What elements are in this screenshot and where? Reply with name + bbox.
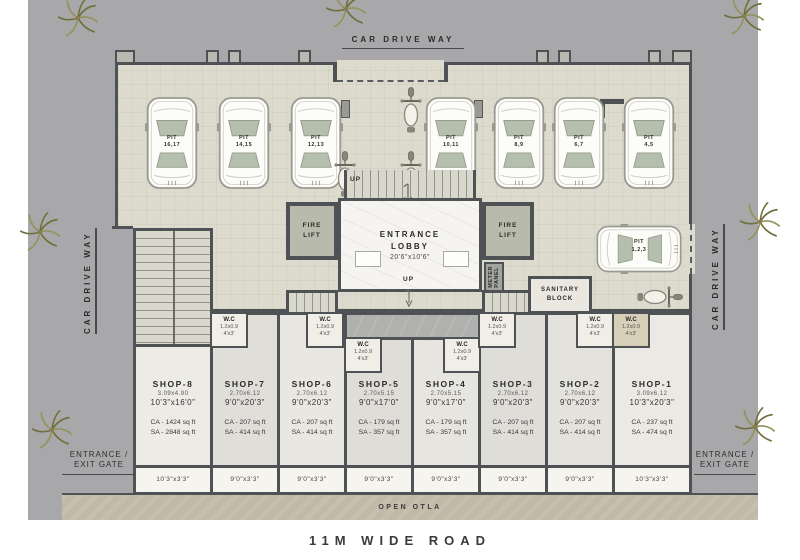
pit-word: PIT bbox=[424, 135, 478, 143]
driveway-label-left: CAR DRIVE WAY bbox=[84, 228, 97, 334]
pit-nums: 14,15 bbox=[217, 142, 271, 150]
shop-metric-size: 2.70x6.12 bbox=[280, 390, 344, 398]
veranda-cell: 10'3"x3'3" bbox=[612, 465, 692, 495]
palm-tree-icon bbox=[17, 209, 63, 255]
wc-imperial: 4'x3' bbox=[480, 331, 514, 338]
wc-box: W.C 1.2x0.9 4'x3' bbox=[344, 337, 382, 373]
wc-imperial: 4'x3' bbox=[445, 356, 479, 363]
parked-car: PIT4,5 bbox=[622, 90, 676, 196]
shop-metric-size: 2.70x5.15 bbox=[347, 390, 411, 398]
shop-saleable-area: SA - 474 sq ft bbox=[615, 428, 689, 438]
pit-word: PIT bbox=[145, 135, 199, 143]
shop-room: SHOP-8 3.09x4.90 10'3"x16'0" CA - 1424 s… bbox=[133, 344, 213, 468]
palm-tree-icon bbox=[29, 407, 75, 453]
veranda-cell: 9'0"x3'3" bbox=[545, 465, 615, 495]
meter-panel-label: PANEL bbox=[494, 267, 500, 288]
shop-imperial-size: 9'0"x20'3" bbox=[481, 398, 545, 408]
veranda-cell: 10'3"x3'3" bbox=[133, 465, 213, 495]
driveway-label-right-text: CAR DRIVE WAY bbox=[712, 224, 720, 330]
wc-metric: 1.2x0.9 bbox=[346, 349, 380, 356]
pit-word: PIT bbox=[552, 135, 606, 143]
pit-word: PIT bbox=[622, 135, 676, 143]
veranda-size: 9'0"x3'3" bbox=[230, 477, 259, 484]
stair-divider bbox=[173, 231, 175, 344]
shop-carpet-area: CA - 207 sq ft bbox=[213, 418, 277, 428]
pit-nums: 1,2,3 bbox=[583, 247, 695, 255]
wc-label: W.C bbox=[212, 317, 246, 324]
shop-carpet-area: CA - 179 sq ft bbox=[347, 418, 411, 428]
lobby-up-label: UP bbox=[403, 277, 414, 284]
parked-car: PIT8,9 bbox=[492, 90, 546, 196]
staircase bbox=[133, 228, 213, 347]
shop-saleable-area: SA - 357 sq ft bbox=[414, 428, 478, 438]
fire-lift-label: LIFT bbox=[499, 231, 518, 241]
entrance-lobby: ENTRANCE LOBBY 20'6"x10'6" UP bbox=[338, 198, 482, 292]
wall-stub bbox=[444, 62, 448, 82]
veranda-size: 10'3"x3'3" bbox=[635, 477, 668, 484]
pit-nums: 6,7 bbox=[552, 142, 606, 150]
pit-nums: 8,9 bbox=[492, 142, 546, 150]
veranda-size: 10'3"x3'3" bbox=[156, 477, 189, 484]
wc-label: W.C bbox=[614, 317, 648, 324]
wc-label: W.C bbox=[578, 317, 612, 324]
driveway-label-top: CAR DRIVE WAY bbox=[342, 36, 464, 49]
wc-box: W.C 1.2x0.9 4'x3' bbox=[478, 312, 516, 348]
fire-lift-label: FIRE bbox=[303, 221, 322, 231]
palm-tree-icon bbox=[732, 404, 778, 450]
wc-imperial: 4'x3' bbox=[614, 331, 648, 338]
lobby-title: ENTRANCE bbox=[341, 229, 479, 241]
pit-word: PIT bbox=[217, 135, 271, 143]
shop-name: SHOP-7 bbox=[213, 379, 277, 390]
driveway-label-left-text: CAR DRIVE WAY bbox=[84, 228, 92, 334]
shop-name: SHOP-5 bbox=[347, 379, 411, 390]
pier bbox=[648, 50, 661, 64]
shop-saleable-area: SA - 414 sq ft bbox=[280, 428, 344, 438]
pier bbox=[558, 50, 571, 64]
wc-label: W.C bbox=[480, 317, 514, 324]
lobby-table bbox=[443, 251, 469, 267]
veranda-cell: 9'0"x3'3" bbox=[210, 465, 280, 495]
driveway-label-right: CAR DRIVE WAY bbox=[712, 224, 725, 330]
veranda-cell: 9'0"x3'3" bbox=[411, 465, 481, 495]
shop-saleable-area: SA - 414 sq ft bbox=[213, 428, 277, 438]
wc-imperial: 4'x3' bbox=[346, 356, 380, 363]
sanitary-label: BLOCK bbox=[541, 295, 579, 304]
shop-imperial-size: 10'3"x16'0" bbox=[136, 398, 210, 408]
shop-metric-size: 3.09x4.90 bbox=[136, 390, 210, 398]
veranda-size: 9'0"x3'3" bbox=[364, 477, 393, 484]
shop-carpet-area: CA - 207 sq ft bbox=[280, 418, 344, 428]
parked-car: PIT6,7 bbox=[552, 90, 606, 196]
corridor bbox=[344, 312, 481, 340]
shop-saleable-area: SA - 2848 sq ft bbox=[136, 428, 210, 438]
parked-car-horizontal: PIT1,2,3 bbox=[583, 224, 695, 274]
shop-name: SHOP-1 bbox=[615, 379, 689, 390]
road-label: 11M WIDE ROAD bbox=[0, 520, 800, 560]
hall-step-notch bbox=[112, 226, 133, 315]
wc-metric: 1.2x0.9 bbox=[614, 324, 648, 331]
shop-imperial-size: 9'0"x20'3" bbox=[548, 398, 612, 408]
shop-name: SHOP-6 bbox=[280, 379, 344, 390]
veranda-size: 9'0"x3'3" bbox=[498, 477, 527, 484]
gate-left: ENTRANCE / EXIT GATE bbox=[62, 450, 136, 475]
shop-saleable-area: SA - 414 sq ft bbox=[481, 428, 545, 438]
wc-box: W.C 1.2x0.9 4'x3' bbox=[443, 337, 481, 373]
wc-metric: 1.2x0.9 bbox=[212, 324, 246, 331]
lobby-table bbox=[355, 251, 381, 267]
wc-box: W.C 1.2x0.9 4'x3' bbox=[210, 312, 248, 348]
palm-tree-icon bbox=[55, 0, 101, 41]
shop-metric-size: 2.70x6.12 bbox=[213, 390, 277, 398]
driveway-underline-left bbox=[95, 228, 97, 334]
shop-name: SHOP-2 bbox=[548, 379, 612, 390]
pier bbox=[536, 50, 549, 64]
wc-box: W.C 1.2x0.9 4'x3' bbox=[576, 312, 614, 348]
parked-car: PIT16,17 bbox=[145, 90, 199, 196]
gate-label: ENTRANCE / bbox=[694, 450, 756, 460]
wc-label: W.C bbox=[346, 342, 380, 349]
pit-nums: 10,11 bbox=[424, 142, 478, 150]
shop-name: SHOP-4 bbox=[414, 379, 478, 390]
open-otla: OPEN OTLA bbox=[62, 493, 758, 520]
pier bbox=[672, 50, 692, 64]
arrow-down-icon bbox=[404, 288, 414, 308]
gate-right: ENTRANCE / EXIT GATE bbox=[694, 450, 756, 475]
pier bbox=[115, 50, 135, 64]
floor-plan: CAR DRIVE WAY CAR DRIVE WAY CAR DRIVE WA… bbox=[0, 0, 800, 560]
shop-carpet-area: CA - 207 sq ft bbox=[548, 418, 612, 428]
shop-metric-size: 3.09x6.12 bbox=[615, 390, 689, 398]
pit-nums: 12,13 bbox=[289, 142, 343, 150]
wc-box: W.C 1.2x0.9 4'x3' bbox=[612, 312, 650, 348]
opening-dashed-line bbox=[337, 80, 444, 82]
scooter-icon bbox=[637, 285, 683, 309]
pit-word: PIT bbox=[289, 135, 343, 143]
sanitary-block: SANITARYBLOCK bbox=[528, 276, 592, 314]
shop-saleable-area: SA - 357 sq ft bbox=[347, 428, 411, 438]
wc-metric: 1.2x0.9 bbox=[480, 324, 514, 331]
shop-carpet-area: CA - 1424 sq ft bbox=[136, 418, 210, 428]
gate-label: EXIT GATE bbox=[694, 460, 756, 470]
shop-imperial-size: 9'0"x20'3" bbox=[280, 398, 344, 408]
fire-lift-right: FIRELIFT bbox=[482, 202, 534, 260]
pit-nums: 4,5 bbox=[622, 142, 676, 150]
shop-imperial-size: 9'0"x17'0" bbox=[414, 398, 478, 408]
shop-metric-size: 2.70x6.12 bbox=[548, 390, 612, 398]
shop-carpet-area: CA - 179 sq ft bbox=[414, 418, 478, 428]
fire-lift-label: LIFT bbox=[303, 231, 322, 241]
shop-carpet-area: CA - 237 sq ft bbox=[615, 418, 689, 428]
gate-label: ENTRANCE / bbox=[62, 450, 136, 460]
wc-box: W.C 1.2x0.9 4'x3' bbox=[306, 312, 344, 348]
pit-word: PIT bbox=[583, 239, 695, 247]
veranda-cell: 9'0"x3'3" bbox=[478, 465, 548, 495]
parked-car: PIT14,15 bbox=[217, 90, 271, 196]
shop-metric-size: 2.70x5.15 bbox=[414, 390, 478, 398]
palm-tree-icon bbox=[323, 0, 369, 32]
pit-nums: 16,17 bbox=[145, 142, 199, 150]
pit-word: PIT bbox=[492, 135, 546, 143]
veranda-cell: 9'0"x3'3" bbox=[277, 465, 347, 495]
palm-tree-icon bbox=[721, 0, 767, 39]
pier bbox=[228, 50, 241, 64]
gate-label: EXIT GATE bbox=[62, 460, 136, 470]
shop-carpet-area: CA - 207 sq ft bbox=[481, 418, 545, 428]
shop-name: SHOP-3 bbox=[481, 379, 545, 390]
shop-metric-size: 2.70x6.12 bbox=[481, 390, 545, 398]
wc-metric: 1.2x0.9 bbox=[578, 324, 612, 331]
pier bbox=[206, 50, 219, 64]
fire-lift-label: FIRE bbox=[499, 221, 518, 231]
shop-imperial-size: 10'3"x20'3" bbox=[615, 398, 689, 408]
wc-metric: 1.2x0.9 bbox=[445, 349, 479, 356]
palm-tree-icon bbox=[737, 199, 783, 245]
scooter-icon bbox=[399, 87, 423, 133]
veranda-size: 9'0"x3'3" bbox=[565, 477, 594, 484]
fire-lift-left: FIRELIFT bbox=[286, 202, 338, 260]
veranda-size: 9'0"x3'3" bbox=[431, 477, 460, 484]
meter-panel: METER PANEL bbox=[484, 262, 504, 292]
wc-imperial: 4'x3' bbox=[308, 331, 342, 338]
wc-imperial: 4'x3' bbox=[212, 331, 246, 338]
pier bbox=[298, 50, 311, 64]
veranda-cell: 9'0"x3'3" bbox=[344, 465, 414, 495]
veranda-size: 9'0"x3'3" bbox=[297, 477, 326, 484]
shop-name: SHOP-8 bbox=[136, 379, 210, 390]
shop-imperial-size: 9'0"x20'3" bbox=[213, 398, 277, 408]
shop-saleable-area: SA - 414 sq ft bbox=[548, 428, 612, 438]
wc-imperial: 4'x3' bbox=[578, 331, 612, 338]
wc-label: W.C bbox=[308, 317, 342, 324]
wc-metric: 1.2x0.9 bbox=[308, 324, 342, 331]
open-otla-label: OPEN OTLA bbox=[378, 504, 441, 511]
wc-label: W.C bbox=[445, 342, 479, 349]
driveway-underline-right bbox=[723, 224, 725, 330]
sanitary-label: SANITARY bbox=[541, 286, 579, 295]
shop-imperial-size: 9'0"x17'0" bbox=[347, 398, 411, 408]
steps-up-label: UP bbox=[350, 177, 361, 184]
scooter-horizontal bbox=[637, 285, 683, 309]
entrance-opening bbox=[337, 60, 444, 67]
